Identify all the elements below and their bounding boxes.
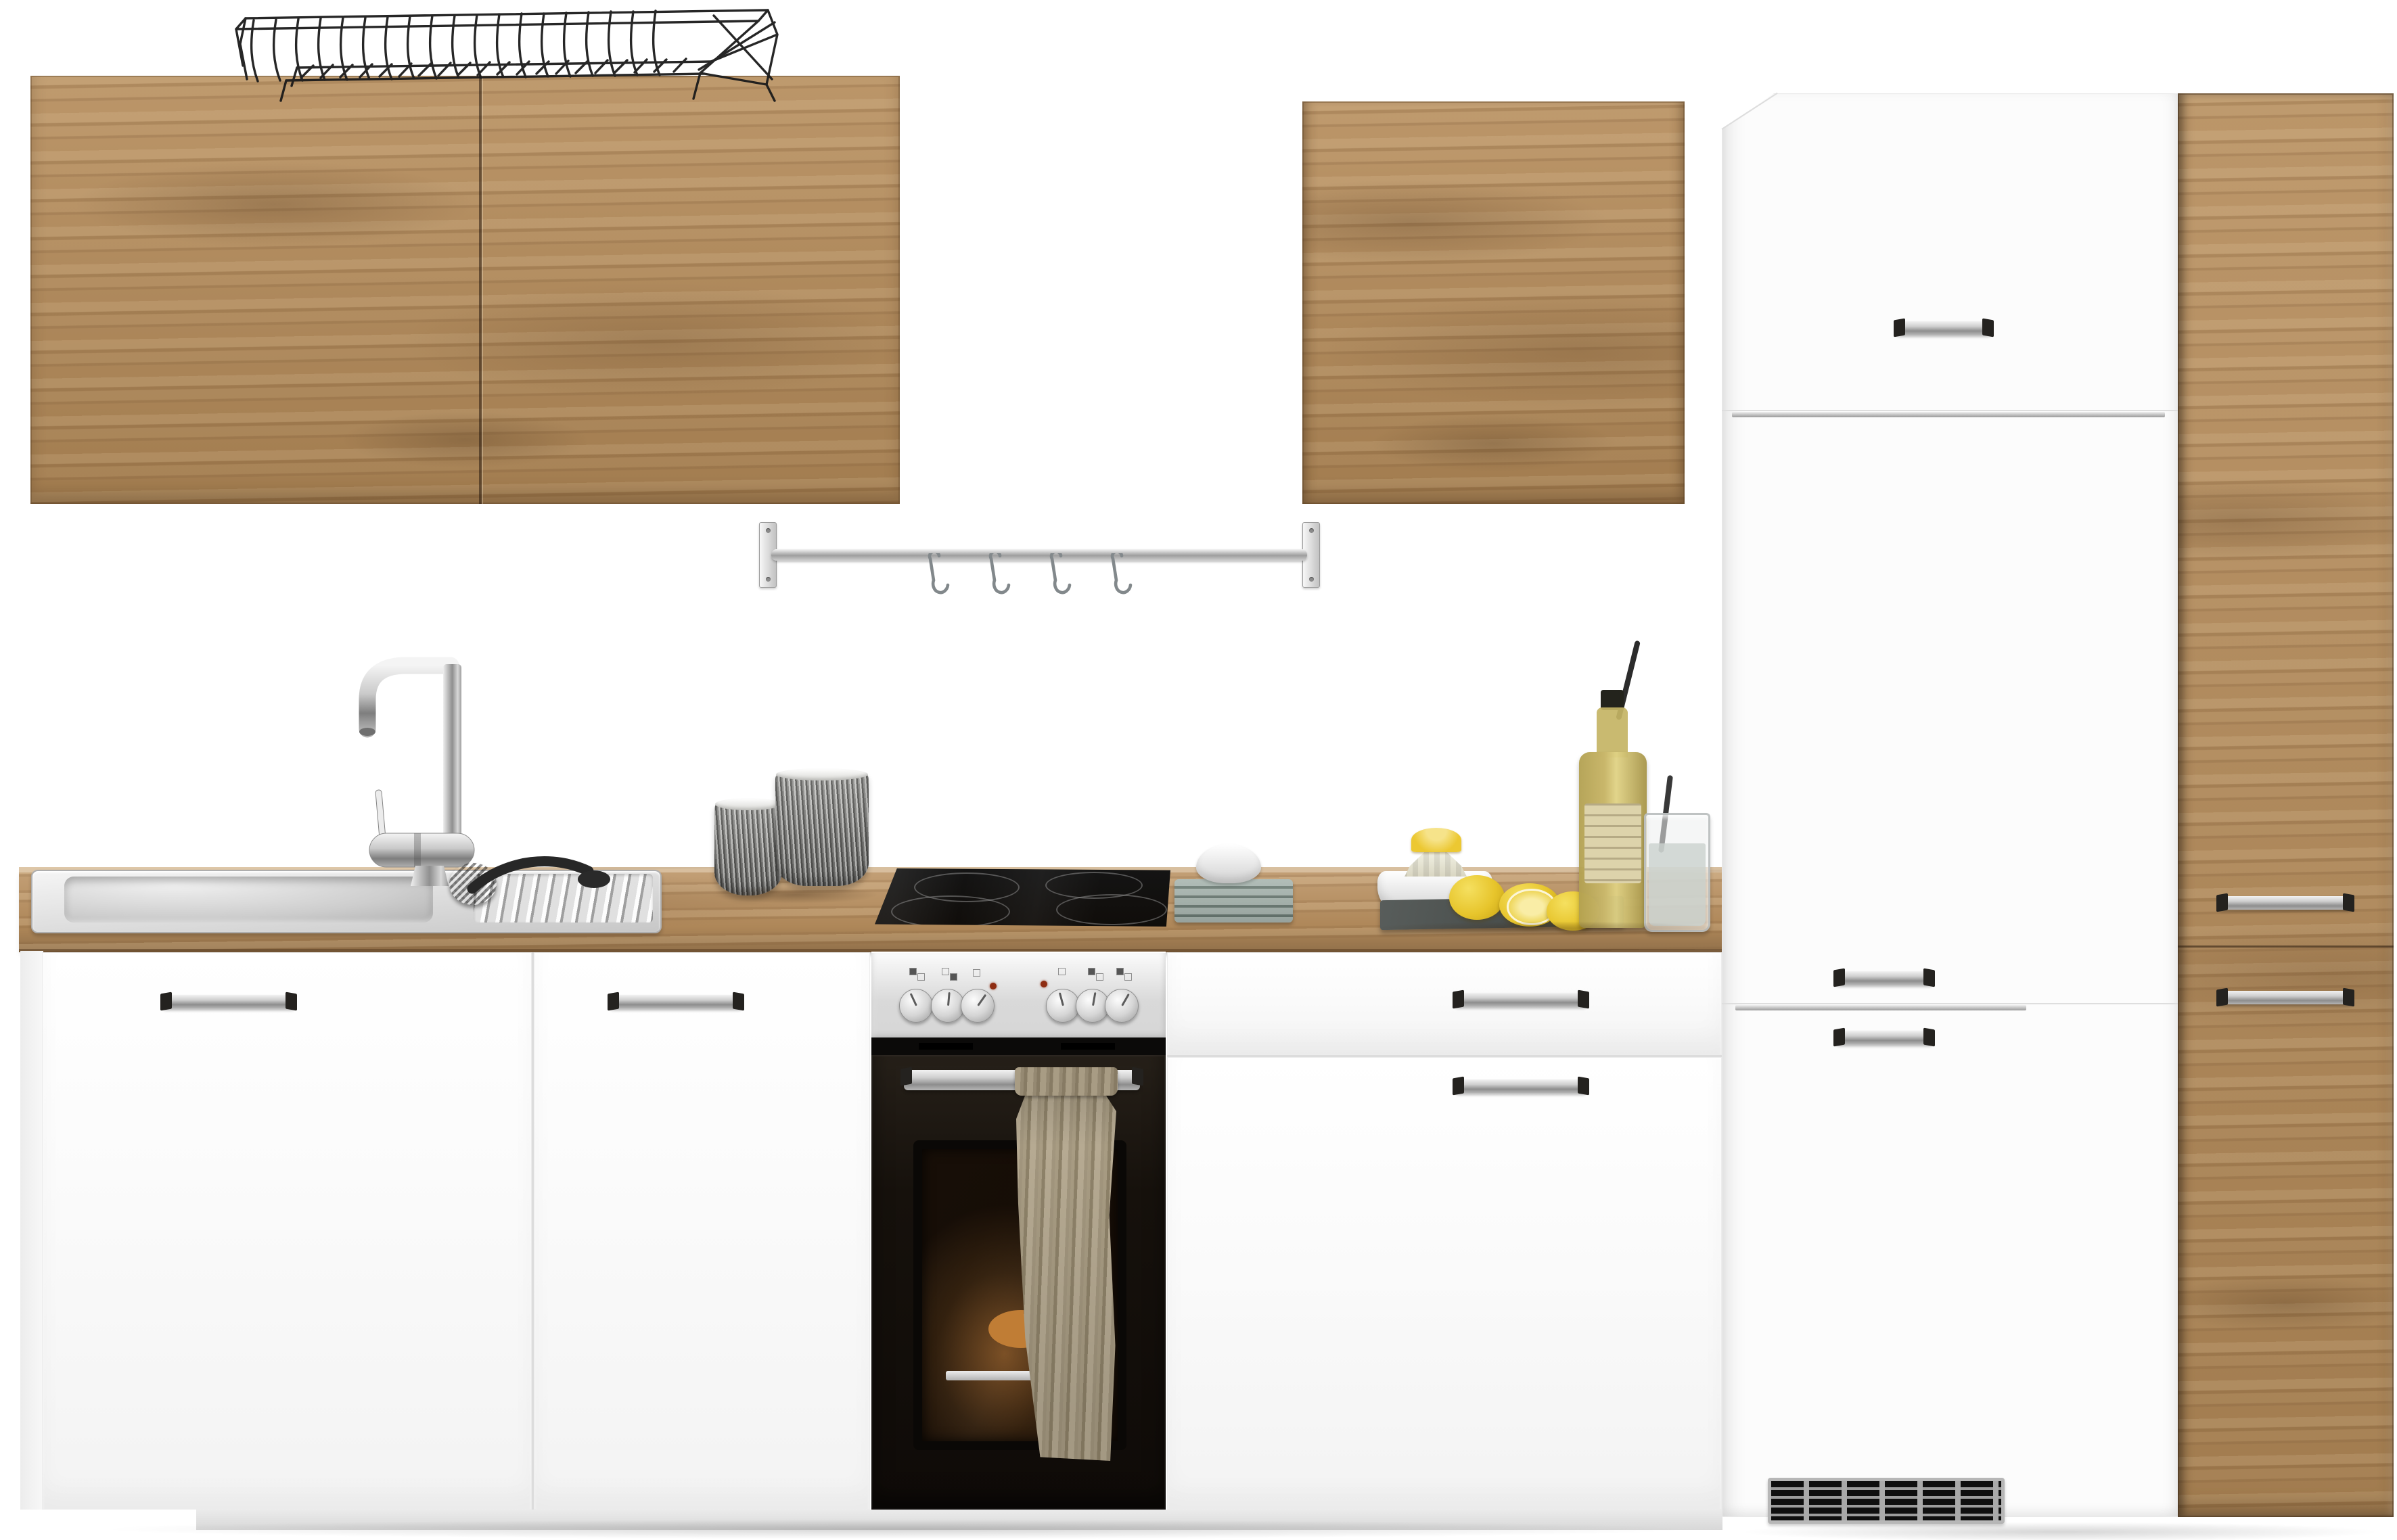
- base-cabinet-right-door-handle: [1456, 1079, 1586, 1093]
- pantry-tall-unit: [2178, 93, 2394, 1517]
- pantry-lower-door-handle: [2220, 991, 2351, 1004]
- program-icon: [1096, 973, 1103, 981]
- bottle-neck: [1597, 707, 1628, 757]
- faucet-body-ring: [414, 833, 421, 867]
- base-cabinet-right-door: [1167, 1057, 1722, 1510]
- fridge-door-handle: [1837, 971, 1932, 985]
- dish-rack: [227, 3, 788, 108]
- mug-small: [714, 802, 782, 895]
- oven-knob-2: [931, 989, 965, 1023]
- burner-ring-front-right: [1056, 894, 1167, 925]
- fridge-lower-seam-strip: [1735, 1005, 2026, 1010]
- oven-knob-1: [899, 989, 933, 1023]
- burner-ring-front-left: [891, 895, 1010, 928]
- base-cabinet-2: [534, 952, 870, 1510]
- mug-shadow: [710, 886, 880, 904]
- napkin-stack: [1174, 879, 1293, 923]
- program-icon: [917, 973, 925, 981]
- oven-hinge: [919, 1043, 973, 1050]
- rail-s-hooks: [919, 553, 1142, 609]
- vent-grille: [1768, 1478, 2005, 1524]
- wall-cabinet-right: [1302, 101, 1685, 504]
- lemon-half-on-press: [1411, 828, 1461, 852]
- pantry-door-seam: [2178, 946, 2394, 948]
- oven-hinge: [1061, 1043, 1115, 1050]
- base-side-panel-left: [20, 951, 43, 1510]
- faucet-body: [369, 833, 474, 867]
- mug-large: [775, 772, 869, 886]
- base-cabinet-1-handle: [164, 995, 294, 1008]
- faucet-spout-arm: [367, 666, 451, 729]
- oven-knob-6: [1105, 989, 1139, 1023]
- program-icon: [1116, 968, 1124, 975]
- program-icon: [973, 969, 980, 977]
- base-cabinet-right-drawer: [1167, 952, 1722, 1055]
- small-white-bowl: [1196, 844, 1261, 883]
- wall-cabinet-left-door-seam-highlight: [482, 76, 483, 504]
- faucet-lever: [375, 790, 386, 841]
- product-photo-kitchen: [0, 0, 2397, 1540]
- pantry-upper-door-handle: [2220, 896, 2351, 910]
- cooktop: [875, 868, 1170, 927]
- program-icon: [942, 968, 949, 975]
- fridge-lower-door-seam: [1722, 1003, 2179, 1004]
- indicator-light: [1041, 981, 1047, 987]
- fridge-upper-door-seam: [1722, 410, 2179, 411]
- fridge-tall-unit: [1722, 93, 2179, 1517]
- faucet: [349, 647, 484, 890]
- program-icon: [1088, 968, 1095, 975]
- program-icon: [909, 968, 917, 975]
- oven-knob-4: [1046, 989, 1080, 1023]
- oven-knob-3: [961, 989, 995, 1023]
- fridge-top-door-handle: [1897, 321, 1990, 335]
- sink-drain-tool: [467, 847, 626, 904]
- lemon-whole: [1449, 875, 1505, 920]
- base-cabinet-2-handle: [611, 995, 741, 1008]
- props-shadow: [1367, 921, 1725, 936]
- faucet-spout-tip: [359, 728, 375, 736]
- faucet-base: [411, 866, 449, 886]
- floor-shadow-base: [95, 1519, 1698, 1539]
- program-icon: [1058, 968, 1066, 975]
- freezer-door-handle: [1837, 1031, 1932, 1044]
- oven-control-panel: [871, 952, 1166, 1041]
- base-cabinet-1: [42, 952, 532, 1510]
- program-icon: [1124, 973, 1132, 981]
- oven-door-gap: [871, 1037, 1166, 1055]
- faucet-riser: [443, 664, 461, 843]
- glass-liquid: [1649, 843, 1706, 926]
- wall-cabinet-left: [30, 76, 900, 504]
- indicator-light: [990, 983, 997, 989]
- program-icon: [950, 973, 957, 981]
- bottle-label: [1584, 803, 1641, 883]
- glass: [1644, 813, 1710, 932]
- fridge-upper-seam-strip: [1732, 412, 2165, 417]
- base-cabinet-right-drawer-handle: [1456, 993, 1586, 1006]
- floor-shadow-tall-units: [1739, 1522, 2381, 1540]
- oven-towel-fold: [1015, 1067, 1118, 1096]
